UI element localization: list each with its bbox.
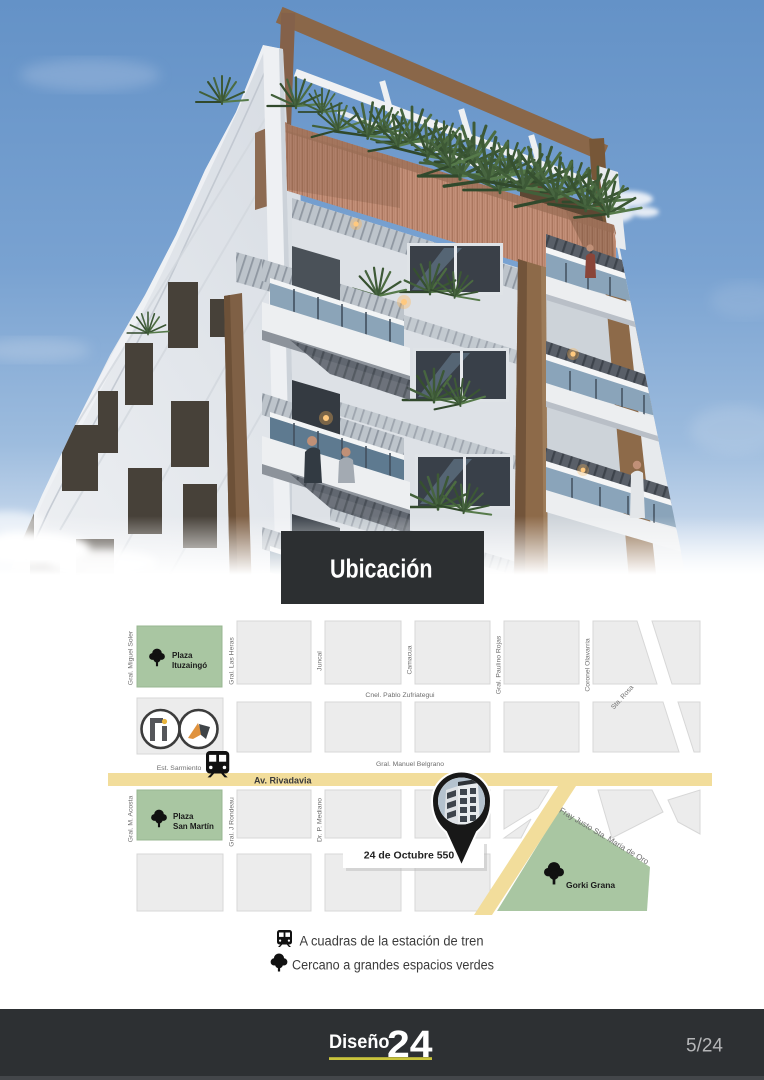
svg-text:A cuadras de la estación de tr: A cuadras de la estación de tren <box>300 934 484 949</box>
svg-text:Plaza: Plaza <box>173 812 194 821</box>
svg-text:Gral. Paulino Rojas: Gral. Paulino Rojas <box>496 635 503 694</box>
svg-text:Cercano a grandes espacios ver: Cercano a grandes espacios verdes <box>292 958 494 973</box>
svg-text:Est. Sarmiento: Est. Sarmiento <box>157 765 202 772</box>
svg-text:Camacua: Camacua <box>407 645 414 674</box>
svg-text:Diseño: Diseño <box>329 1032 390 1053</box>
svg-text:San Martín: San Martín <box>173 822 214 831</box>
svg-text:Gorki Grana: Gorki Grana <box>566 880 615 890</box>
svg-text:Gral. M. Acosta: Gral. M. Acosta <box>128 796 135 843</box>
svg-text:24: 24 <box>387 1024 433 1066</box>
svg-text:Gral. Las Heras: Gral. Las Heras <box>229 637 236 685</box>
svg-text:5/24: 5/24 <box>686 1035 723 1056</box>
svg-text:Ubicación: Ubicación <box>330 556 433 584</box>
svg-text:Gral. J Rondeau: Gral. J Rondeau <box>229 797 236 847</box>
svg-text:Dr. P. Mediano: Dr. P. Mediano <box>317 798 324 842</box>
svg-text:Juncal: Juncal <box>317 651 324 671</box>
svg-text:Gral. Manuel Belgrano: Gral. Manuel Belgrano <box>376 761 444 768</box>
svg-text:Ituzaingó: Ituzaingó <box>172 661 207 670</box>
svg-text:24 de Octubre 550: 24 de Octubre 550 <box>364 850 455 862</box>
svg-text:Plaza: Plaza <box>172 651 193 660</box>
svg-text:Gral. Miguel Soler: Gral. Miguel Soler <box>128 630 135 685</box>
svg-text:Av. Rivadavia: Av. Rivadavia <box>254 776 313 786</box>
svg-text:Coronel Olavarria: Coronel Olavarria <box>585 638 592 691</box>
svg-text:Cnel. Pablo Zufriategui: Cnel. Pablo Zufriategui <box>365 692 435 699</box>
